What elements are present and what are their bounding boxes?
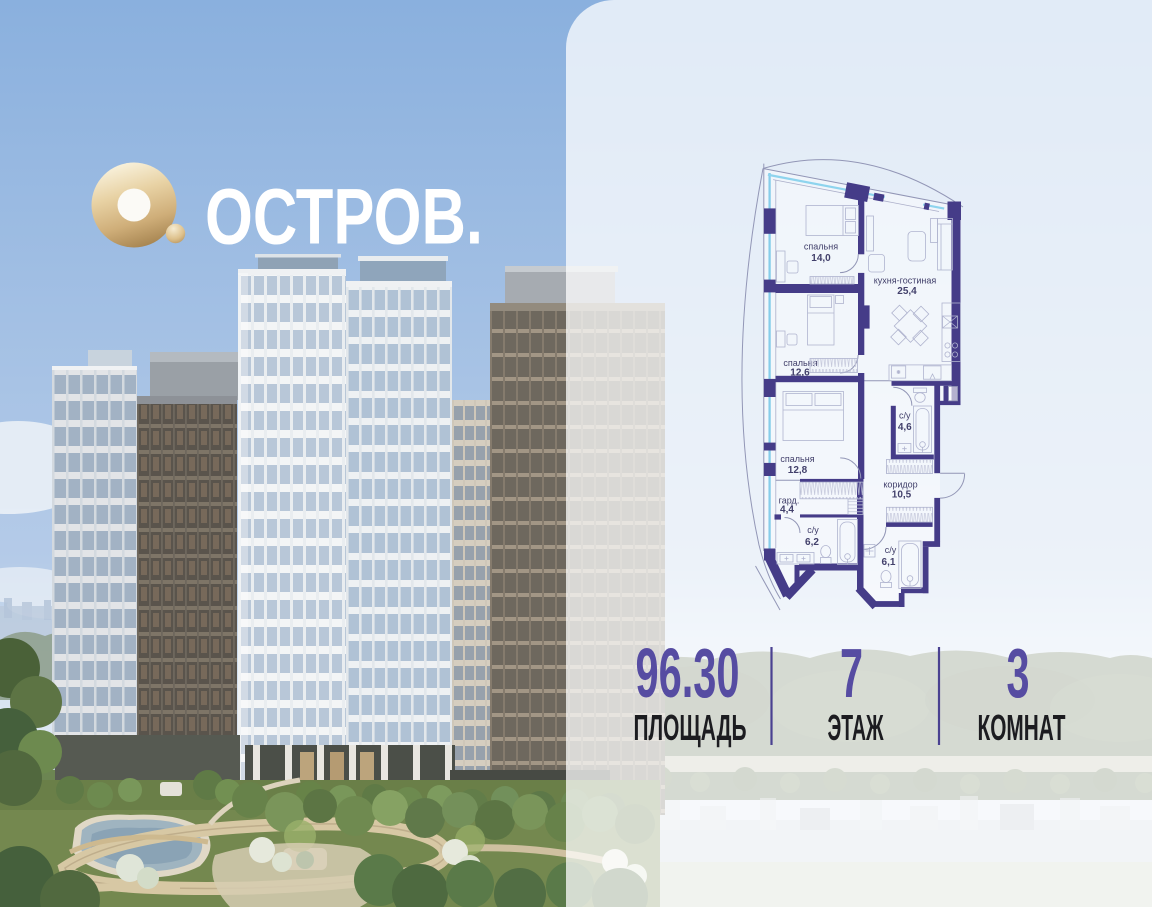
svg-text:кухня-гостиная: кухня-гостиная <box>874 276 937 286</box>
svg-text:спальня: спальня <box>780 454 814 464</box>
svg-text:96.30: 96.30 <box>636 634 740 712</box>
svg-text:с/у: с/у <box>885 545 897 555</box>
svg-text:6,1: 6,1 <box>882 557 896 568</box>
svg-text:КОМНАТ: КОМНАТ <box>978 707 1066 748</box>
svg-text:3: 3 <box>1007 634 1030 712</box>
svg-text:6,2: 6,2 <box>805 537 819 548</box>
svg-text:ПЛОЩАДЬ: ПЛОЩАДЬ <box>634 707 747 748</box>
svg-text:коридор: коридор <box>883 480 917 490</box>
svg-text:25,4: 25,4 <box>897 286 917 297</box>
svg-text:спальня: спальня <box>804 242 838 252</box>
svg-text:ЭТАЖ: ЭТАЖ <box>828 707 884 748</box>
svg-text:4,6: 4,6 <box>898 422 912 433</box>
svg-text:12,6: 12,6 <box>790 367 810 378</box>
svg-text:с/у: с/у <box>899 411 911 421</box>
svg-text:с/у: с/у <box>807 525 819 535</box>
svg-text:14,0: 14,0 <box>811 253 831 264</box>
svg-text:ОСТРОВ.: ОСТРОВ. <box>205 173 483 261</box>
svg-text:10,5: 10,5 <box>892 490 912 501</box>
svg-text:12,8: 12,8 <box>788 465 808 476</box>
svg-text:7: 7 <box>840 634 863 712</box>
svg-text:4,4: 4,4 <box>780 505 794 516</box>
